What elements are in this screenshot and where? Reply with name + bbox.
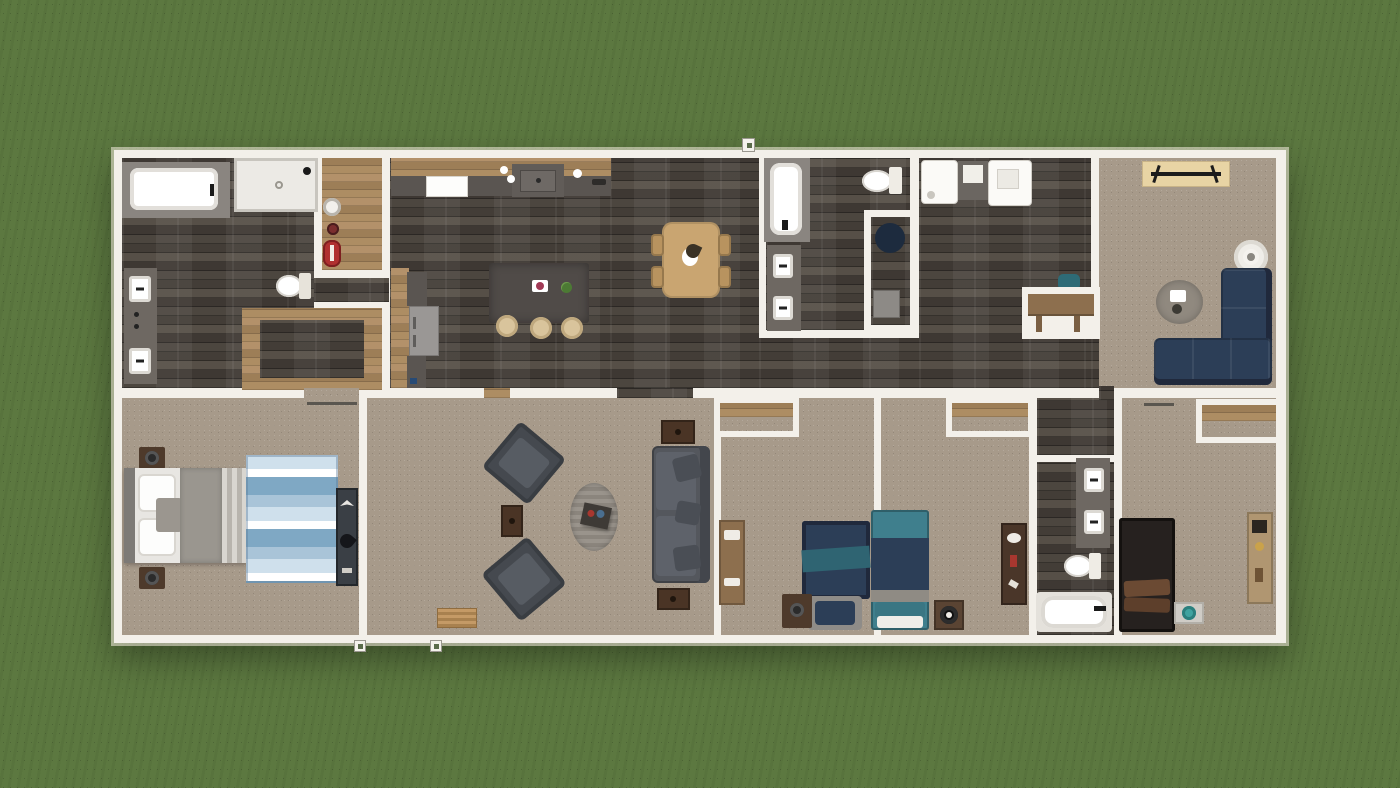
bar-stool (561, 317, 583, 339)
kitchen-island (489, 263, 589, 323)
counter-blue-item-icon (410, 378, 417, 384)
fridge-handle-icon (413, 335, 416, 347)
dresser-decor-item (1008, 579, 1019, 589)
guest-tub-deck (1036, 592, 1112, 632)
dining-chair (718, 266, 731, 288)
walkin-closet-inset (260, 320, 364, 378)
desk-leg (1036, 316, 1042, 332)
front-door-pin (742, 138, 755, 152)
shower-drain-icon (275, 181, 283, 189)
end-table-knob-icon (670, 596, 676, 602)
hall-gauge-icon (327, 223, 339, 235)
guest-corridor-opening (1099, 386, 1114, 400)
sofa (652, 446, 710, 583)
speaker-center-icon (946, 612, 952, 618)
washer (921, 160, 958, 204)
bedroom3-closet-shelf (720, 403, 793, 417)
bedroom4-white-pillow (877, 616, 923, 628)
primary-bed (124, 468, 248, 563)
shelf-item (1255, 542, 1264, 551)
bed-blanket (180, 468, 222, 563)
shelf-item (1255, 568, 1263, 582)
headboard (124, 468, 135, 563)
hall-toilet-bowl (862, 170, 892, 192)
shelf-item (1252, 520, 1267, 533)
armchair-cushion (497, 436, 551, 489)
kitchen-counter-left-upper (407, 272, 427, 306)
bed-foot-runner (222, 468, 248, 563)
bedroom3-chair (808, 596, 862, 630)
guest-tub (1041, 596, 1107, 628)
dining-chair (718, 234, 731, 256)
bedroom4-bed (871, 510, 929, 630)
primary-sink-1 (129, 276, 151, 302)
washer-knob-icon (927, 191, 935, 199)
blue-striped-rug (246, 455, 338, 583)
media-console (1142, 161, 1230, 187)
coffee-table-blue-item-icon (596, 509, 605, 518)
bedroom3-chair-cushion (815, 601, 855, 625)
primary-bathroom-floor-patch (314, 278, 389, 302)
guest-toilet-bowl (1064, 555, 1092, 577)
guest-tub-faucet-icon (1094, 606, 1106, 611)
hall-round-fixture (323, 198, 341, 216)
bedroom5-door-swing (1144, 403, 1174, 406)
utility-pin (354, 640, 366, 652)
end-table-knob-icon (675, 429, 681, 435)
rug-tray (1170, 290, 1186, 302)
kitchen-counter-run (391, 176, 611, 196)
vanity-accessory-icon (134, 324, 139, 329)
round-rug (1156, 280, 1203, 324)
pin-dot-icon (358, 644, 363, 649)
primary-sink-2 (129, 348, 151, 374)
hall-tub-deck (764, 158, 810, 242)
water-heater-icon (875, 223, 905, 253)
desk-item (724, 578, 740, 586)
kitchen-counter-left-lower (407, 356, 426, 388)
dresser-decor-item (342, 568, 352, 573)
dresser-candle-icon (1010, 555, 1017, 567)
side-table (501, 505, 523, 537)
dryer (988, 160, 1032, 206)
lamp-icon (145, 571, 159, 585)
primary-bedroom-door-opening (304, 388, 359, 398)
door-mat (437, 608, 477, 628)
hall-toilet-tank (889, 167, 902, 194)
garden-tub-deck (122, 162, 230, 218)
bedroom4-blanket (871, 538, 929, 590)
end-table (661, 420, 695, 444)
living-room-wide-opening (617, 388, 693, 398)
sofa-pillow (671, 453, 702, 483)
lamp-icon (790, 603, 804, 617)
fire-extinguisher-icon (323, 240, 341, 267)
desk-nook (1022, 287, 1100, 339)
sofa-pillow (674, 500, 701, 526)
utility-pin (430, 640, 442, 652)
rug-plant-icon (1172, 304, 1182, 314)
tv-icon (1151, 172, 1221, 176)
bedroom4-bed-band (871, 590, 929, 602)
bedroom4-nightstand (934, 600, 964, 630)
hall-corridor-floor (759, 338, 921, 388)
teal-lamp-icon (1182, 606, 1196, 620)
hall-sink-1 (773, 254, 793, 278)
primary-toilet-tank (299, 273, 311, 299)
island-flowers-icon (536, 282, 544, 290)
dresser-decor-fan-icon (337, 531, 357, 551)
kitchen-plate-icon (573, 169, 582, 178)
end-table (657, 588, 690, 610)
bedroom5-closet-shelf (1202, 405, 1276, 421)
pin-dot-icon (747, 143, 752, 148)
bedroom3-desk (719, 520, 745, 605)
hall-vanity (767, 245, 801, 331)
nightstand (139, 447, 165, 469)
laundry-cabinet (958, 161, 988, 200)
guest-bath-corridor-floor (1037, 398, 1114, 455)
tub-faucet-icon (210, 184, 214, 196)
fridge-handle-icon (413, 317, 416, 329)
garden-tub (130, 168, 218, 210)
coffee-table-red-item-icon (587, 509, 595, 517)
sofa-pillow (672, 544, 701, 571)
house-floor-plan (114, 150, 1286, 643)
dining-chair (651, 234, 664, 256)
bar-stool (530, 317, 552, 339)
bedroom4-dresser (1001, 523, 1027, 605)
bedroom5-pillow (1124, 579, 1171, 597)
kitchen-plate-icon (500, 166, 508, 174)
bedroom5-bed (1119, 518, 1175, 632)
laundry-basket-icon (963, 165, 983, 183)
utility-box (873, 290, 900, 318)
hall-sink-2 (773, 296, 793, 320)
island-plant-icon (561, 282, 572, 293)
dining-chair (651, 266, 664, 288)
refrigerator (409, 306, 439, 356)
primary-vanity (124, 268, 157, 384)
built-in-desk (1028, 294, 1094, 316)
shower-head-icon (303, 167, 311, 175)
bedroom5-nightstand (1174, 602, 1204, 624)
bedroom3-teal-throw (801, 546, 870, 573)
kitchen-range (426, 176, 468, 197)
accent-pillow (156, 498, 182, 532)
vanity-accessory-icon (134, 312, 139, 317)
bedroom3-bed (802, 521, 870, 599)
guest-vanity (1076, 458, 1110, 548)
kitchen-plate-icon (507, 175, 515, 183)
dining-table (662, 222, 720, 298)
walkin-shower (234, 158, 318, 212)
hall-tub-faucet-icon (782, 220, 788, 230)
lamp-icon (145, 451, 159, 465)
bar-stool (496, 315, 518, 337)
living-room-door-threshold (484, 388, 510, 398)
primary-dresser (336, 488, 358, 586)
bedroom4-closet-shelf (952, 403, 1028, 417)
pin-dot-icon (434, 644, 439, 649)
desk-item (724, 530, 740, 540)
bedroom5-shelf (1247, 512, 1273, 604)
fan-hub-icon (1247, 253, 1255, 261)
bedroom5-pillow (1124, 597, 1170, 613)
side-table-knob-icon (509, 518, 515, 524)
kitchen-tray-icon (592, 179, 606, 185)
bedroom3-nightstand (782, 594, 812, 628)
dresser-decor-item (1007, 533, 1021, 543)
primary-bedroom-door-swing (307, 402, 357, 405)
kitchen-faucet-icon (536, 178, 541, 183)
guest-sink-1 (1084, 468, 1104, 492)
sectional-sofa-horizontal (1154, 338, 1272, 385)
water-closet-nook (864, 210, 917, 332)
extinguisher-stripe (330, 245, 334, 261)
armchair-cushion (496, 552, 551, 607)
dryer-door-icon (997, 169, 1019, 189)
kitchen-sink-cabinet (512, 164, 564, 197)
desk-leg (1074, 316, 1080, 332)
nightstand (139, 567, 165, 589)
guest-sink-2 (1084, 510, 1104, 534)
floor-plan-scene (0, 0, 1400, 788)
dresser-decor-plane-icon (340, 500, 354, 510)
guest-toilet-tank (1089, 553, 1101, 579)
